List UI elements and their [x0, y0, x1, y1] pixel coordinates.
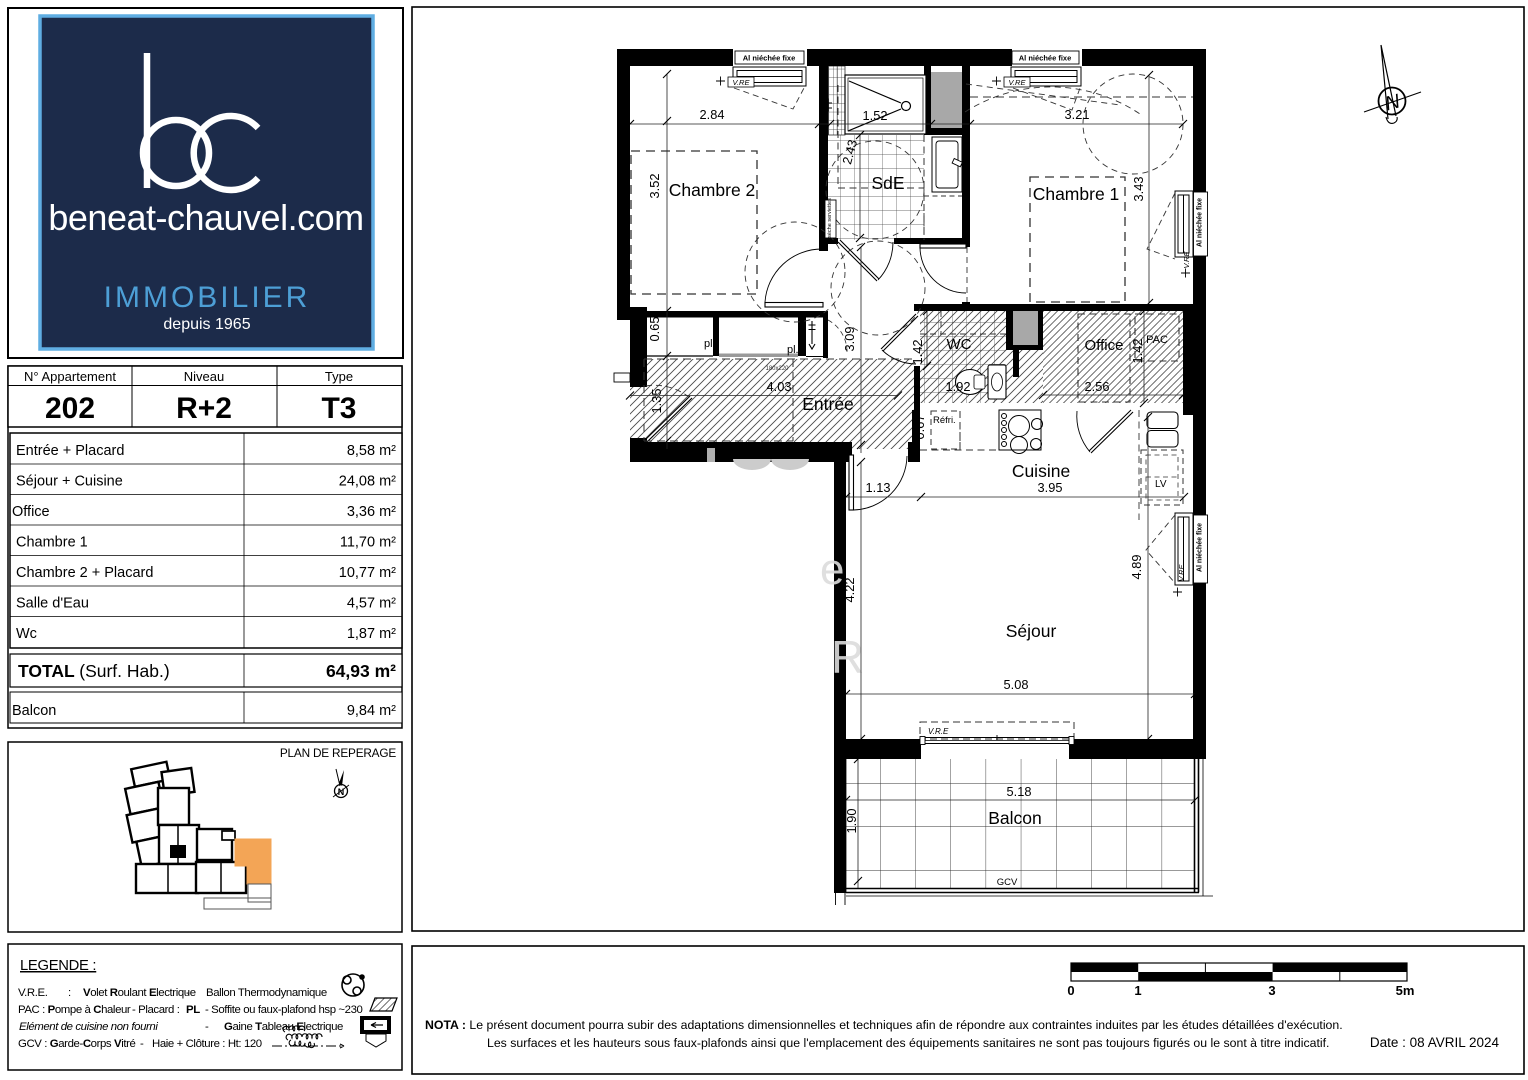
svg-text:4.22: 4.22	[842, 578, 857, 603]
svg-text:LV: LV	[1155, 479, 1167, 490]
svg-text:Niveau: Niveau	[184, 369, 224, 384]
svg-text:Elément de cuisine non fourni: Elément de cuisine non fourni	[19, 1021, 158, 1033]
svg-text:Entrée: Entrée	[802, 394, 854, 414]
svg-text:Al niéchée fixe: Al niéchée fixe	[1197, 198, 1204, 247]
svg-text:24,08 m²: 24,08 m²	[339, 474, 396, 490]
svg-text:WC: WC	[947, 336, 972, 353]
svg-text:Séjour: Séjour	[1006, 621, 1057, 641]
svg-text:NOTA : Le présent document pou: NOTA : Le présent document pourra subir …	[425, 1018, 1343, 1032]
svg-text:5.18: 5.18	[1007, 784, 1032, 799]
svg-text:2.84: 2.84	[700, 107, 725, 122]
svg-text:sèche serviettes: sèche serviettes	[827, 198, 833, 238]
svg-text:10,77 m²: 10,77 m²	[339, 565, 396, 581]
svg-text:2.56: 2.56	[1085, 379, 1110, 394]
svg-text:1.42: 1.42	[910, 340, 925, 365]
svg-text:IMMOBILIER: IMMOBILIER	[104, 281, 311, 314]
svg-text:1.92: 1.92	[946, 379, 971, 394]
svg-text:V.RE: V.RE	[1177, 564, 1186, 582]
svg-text:depuis 1965: depuis 1965	[163, 316, 250, 333]
svg-text:Wc: Wc	[16, 626, 37, 642]
svg-text:Date : 08 AVRIL 2024: Date : 08 AVRIL 2024	[1370, 1035, 1500, 1050]
svg-text:pl.: pl.	[787, 344, 799, 356]
svg-text:Salle d'Eau: Salle d'Eau	[16, 596, 89, 612]
svg-text:Séjour + Cuisine: Séjour + Cuisine	[16, 474, 123, 490]
svg-text:V.R.E: V.R.E	[928, 727, 949, 736]
svg-text:N° Appartement: N° Appartement	[24, 369, 116, 384]
svg-text:1.13: 1.13	[866, 480, 891, 495]
svg-text:- Soffite ou faux-plafond hsp: - Soffite ou faux-plafond hsp ~230	[205, 1004, 363, 1016]
svg-text:V.RE: V.RE	[1009, 78, 1027, 87]
svg-text:-: -	[186, 987, 190, 999]
svg-text:3.52: 3.52	[647, 174, 662, 199]
svg-text:11,70 m²: 11,70 m²	[340, 535, 396, 551]
svg-text:Office: Office	[1085, 337, 1124, 354]
svg-text:Chambre 2: Chambre 2	[669, 180, 756, 200]
svg-text:Al niéchée fixe: Al niéchée fixe	[1197, 523, 1204, 572]
svg-text:Entrée + Placard: Entrée + Placard	[16, 443, 124, 459]
svg-text:Type: Type	[325, 369, 353, 384]
svg-text:Al niéchée fixe: Al niéchée fixe	[1019, 54, 1072, 63]
svg-text:LEGENDE :: LEGENDE :	[20, 958, 96, 974]
svg-text:180x220: 180x220	[765, 366, 789, 372]
svg-text:1.42: 1.42	[1130, 339, 1145, 364]
svg-text:GCV : Garde-Corps Vitré: GCV : Garde-Corps Vitré	[18, 1038, 135, 1050]
svg-text:V.RE: V.RE	[1182, 251, 1191, 269]
svg-text:-: -	[140, 1038, 144, 1050]
svg-text:pl.: pl.	[704, 338, 716, 350]
svg-text:V.R.E.: V.R.E.	[18, 987, 48, 999]
svg-text:Haie + Clôture : Ht: 120: Haie + Clôture : Ht: 120	[152, 1038, 262, 1050]
svg-text:1.35: 1.35	[649, 389, 664, 414]
svg-text:5m: 5m	[1396, 983, 1415, 998]
svg-text:R+2: R+2	[176, 392, 232, 425]
svg-text:Volet Roulant Electrique: Volet Roulant Electrique	[83, 987, 196, 999]
svg-text:64,93 m²: 64,93 m²	[326, 661, 396, 681]
svg-text::: :	[68, 987, 71, 999]
svg-text:3: 3	[1268, 983, 1275, 998]
svg-text:9,84 m²: 9,84 m²	[347, 703, 396, 719]
svg-text:PAC : Pompe à Chaleur: PAC : Pompe à Chaleur	[18, 1004, 131, 1016]
svg-text:Chambre 1: Chambre 1	[1033, 184, 1120, 204]
svg-text:-: -	[205, 1021, 209, 1033]
svg-text:1,87 m²: 1,87 m²	[347, 626, 396, 642]
svg-text:Ballon Thermodynamique: Ballon Thermodynamique	[206, 987, 327, 999]
svg-text:GCV: GCV	[997, 877, 1018, 888]
svg-text:3.21: 3.21	[1065, 107, 1090, 122]
svg-text:Réfri.: Réfri.	[933, 415, 956, 426]
svg-text:PAC: PAC	[1146, 334, 1168, 346]
svg-text:V.RE: V.RE	[733, 78, 751, 87]
svg-text:Al niéchée fixe: Al niéchée fixe	[743, 54, 796, 63]
svg-text:Chambre 2 + Placard: Chambre 2 + Placard	[16, 565, 153, 581]
svg-text:202: 202	[45, 392, 95, 425]
svg-text:0.65: 0.65	[647, 317, 662, 342]
svg-text:3.43: 3.43	[1131, 177, 1146, 202]
svg-text:3,36 m²: 3,36 m²	[347, 504, 396, 520]
svg-text:4,57 m²: 4,57 m²	[347, 596, 396, 612]
svg-text:TOTAL (Surf. Hab.): TOTAL (Surf. Hab.)	[18, 661, 170, 681]
svg-text:Cuisine: Cuisine	[1012, 461, 1070, 481]
svg-text:4.03: 4.03	[767, 379, 792, 394]
svg-text:Chambre 1: Chambre 1	[16, 535, 88, 551]
svg-text:PL: PL	[186, 1004, 200, 1016]
svg-text:0.67: 0.67	[912, 415, 927, 440]
svg-text:- Placard :: - Placard :	[132, 1004, 180, 1016]
svg-text:beneat-chauvel.com: beneat-chauvel.com	[48, 197, 363, 238]
svg-text:Office: Office	[12, 504, 50, 520]
svg-text:N: N	[338, 787, 345, 797]
svg-text:1: 1	[1134, 983, 1141, 998]
svg-text:3.09: 3.09	[842, 327, 857, 352]
svg-text:5.08: 5.08	[1004, 677, 1029, 692]
svg-text:4.89: 4.89	[1129, 555, 1144, 580]
svg-text:Balcon: Balcon	[988, 808, 1042, 828]
svg-text:T3: T3	[321, 392, 356, 425]
svg-text:0: 0	[1067, 983, 1074, 998]
svg-text:e: e	[820, 545, 844, 594]
svg-text:Les surfaces et les hauteurs s: Les surfaces et les hauteurs sous faux-p…	[487, 1036, 1329, 1050]
svg-text:8,58 m²: 8,58 m²	[347, 443, 396, 459]
svg-text:PLAN DE REPERAGE: PLAN DE REPERAGE	[280, 746, 396, 760]
svg-text:Balcon: Balcon	[12, 703, 56, 719]
svg-text:3.95: 3.95	[1038, 480, 1063, 495]
svg-text:SdE: SdE	[871, 173, 904, 193]
svg-text:1.52: 1.52	[863, 108, 888, 123]
svg-text:R: R	[831, 631, 864, 683]
